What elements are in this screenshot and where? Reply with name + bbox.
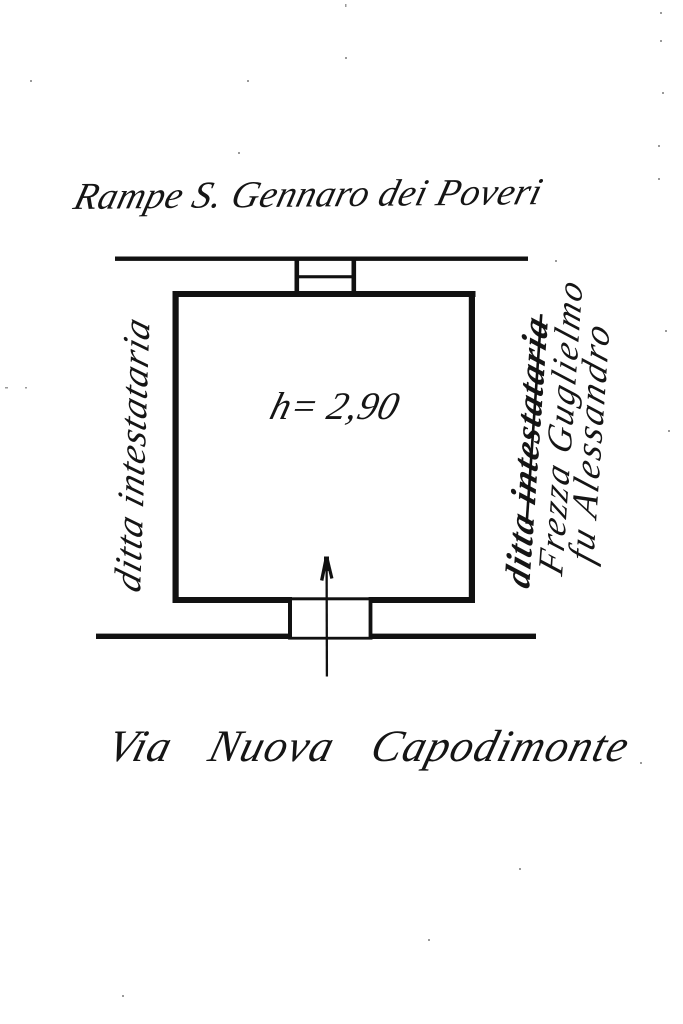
svg-text:Via Nuova Capodimonte: Via Nuova Capodimonte: [102, 721, 635, 771]
svg-text:h= 2,90: h= 2,90: [266, 385, 405, 428]
svg-text:Rampe S. Gennaro dei Poveri: Rampe S. Gennaro dei Poveri: [69, 172, 547, 218]
